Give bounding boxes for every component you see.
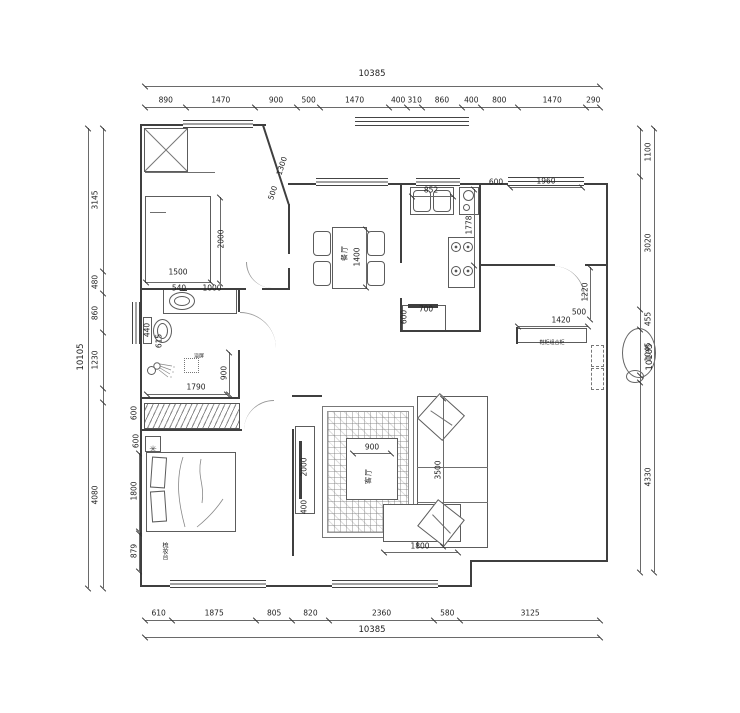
closet-hatch	[144, 403, 240, 429]
dim-label: 580	[440, 609, 454, 617]
wall-segment	[140, 288, 246, 290]
dimension-chain-line	[103, 128, 104, 588]
dim-label: 3020	[644, 233, 652, 252]
dim-label: 1500	[168, 268, 187, 276]
shower-head-icon	[150, 358, 180, 388]
floor-plan: ✳ 鞋柜组合柜	[0, 0, 740, 713]
dim-label: 310	[408, 96, 422, 104]
wall-segment	[140, 124, 142, 587]
dim-label: 600	[489, 178, 503, 186]
dining-table	[332, 227, 367, 289]
entry-door-leaf	[591, 368, 604, 390]
dim-label: 1230	[91, 351, 99, 370]
dimension-chain-line	[145, 86, 600, 87]
sofa-cushion-line	[417, 502, 488, 503]
wall-segment	[262, 288, 290, 290]
dim-label: 1100	[644, 143, 652, 162]
bed-pillow	[150, 491, 167, 523]
window	[332, 580, 438, 588]
dining-chair	[367, 261, 385, 286]
dim-label: 1000	[202, 284, 221, 292]
dim-label: 890	[159, 96, 173, 104]
dim-label: 400	[391, 96, 405, 104]
shoe-cabinet: 鞋柜组合柜	[517, 328, 587, 343]
dim-label: 805	[267, 609, 281, 617]
dim-label: 1470	[345, 96, 364, 104]
dim-label: 1960	[536, 177, 555, 185]
dim-label: 852	[424, 186, 438, 194]
shower-drain-grid	[184, 358, 199, 373]
dim-label: 500	[572, 308, 586, 316]
dim-label: 700	[419, 305, 433, 313]
window	[170, 580, 266, 588]
dim-label: 1800	[410, 542, 429, 550]
dim-label: 1420	[551, 316, 570, 324]
pillow-fold-line	[432, 514, 451, 533]
dim-label: 1300	[275, 156, 288, 176]
window	[316, 178, 388, 186]
dimension-line	[366, 229, 367, 287]
dim-label: 860	[91, 305, 99, 319]
dim-label: 400	[464, 96, 478, 104]
wall-segment	[238, 288, 240, 312]
dim-label: 440	[143, 323, 151, 337]
water-heater-dial	[463, 190, 474, 201]
door-arc-bedroom3	[244, 400, 274, 430]
dimension-chain-line	[145, 620, 600, 621]
stove-burner	[451, 266, 461, 276]
dim-label: 1875	[205, 609, 224, 617]
shoe-cabinet-note: 鞋柜组合柜	[539, 340, 564, 346]
dim-label: 2360	[372, 609, 391, 617]
dimension-line	[147, 394, 227, 395]
dim-label: 540	[172, 284, 186, 292]
dimension-line	[510, 187, 582, 188]
dim-label: 3125	[521, 609, 540, 617]
room-label-dining: 餐厅	[342, 245, 349, 261]
dimension-line	[590, 267, 591, 319]
planter-box: ✳	[145, 436, 161, 452]
window	[183, 120, 253, 128]
dim-label: 3145	[91, 190, 99, 209]
dim-label: 4080	[91, 486, 99, 505]
dim-total-top: 10385	[358, 70, 385, 79]
stove-burner	[463, 266, 473, 276]
dim-label: 480	[91, 275, 99, 289]
wardrobe-box	[144, 128, 188, 172]
wall-segment	[479, 264, 555, 266]
label-dresser: 梳妆台	[161, 542, 167, 560]
dim-label: 1470	[211, 96, 230, 104]
wall-segment	[470, 560, 608, 562]
dim-label: 2000	[217, 229, 225, 248]
dim-label: 500	[267, 185, 279, 201]
dimension-chain-line	[88, 128, 89, 588]
wall-segment	[400, 183, 402, 263]
dining-chair	[313, 231, 331, 256]
dimension-line	[474, 189, 475, 265]
dimension-line	[518, 326, 588, 327]
stove-burner	[451, 242, 461, 252]
wardrobe-x-icon	[145, 129, 187, 171]
dim-label: 600	[130, 406, 138, 420]
dim-label: 290	[586, 96, 600, 104]
wall-segment	[288, 204, 290, 254]
dim-label: 615	[155, 334, 163, 348]
dim-label: 600	[400, 310, 408, 324]
vanity-basin-inner	[174, 296, 190, 306]
dimension-line	[353, 453, 391, 454]
entry-door-leaf	[591, 345, 604, 367]
dim-label: 3500	[434, 460, 442, 479]
wall-segment	[292, 429, 294, 556]
dimension-chain-line	[654, 128, 655, 572]
door-arc-bedroom1	[246, 262, 272, 288]
dim-label: 860	[435, 96, 449, 104]
stove-burner	[463, 242, 473, 252]
dim-label: 1400	[353, 247, 361, 266]
dim-label: 610	[151, 609, 165, 617]
dimension-line	[139, 533, 140, 571]
dim-label: 600	[132, 434, 140, 448]
wall-segment	[606, 183, 608, 562]
dim-label: 879	[130, 544, 138, 558]
dim-label: 900	[269, 96, 283, 104]
dimension-line	[443, 398, 444, 546]
dining-chair	[367, 231, 385, 256]
dim-label: 400	[300, 500, 308, 514]
dim-label: 455	[644, 312, 652, 326]
label-shower-screen: 浴屏	[194, 355, 204, 360]
window	[355, 117, 469, 126]
room-label-living: 客厅	[366, 468, 373, 484]
window	[416, 178, 460, 186]
wall-segment	[140, 397, 240, 399]
dim-label: 1045	[644, 342, 652, 361]
dim-label: 1220	[581, 282, 589, 301]
bed-top-pillow-line	[150, 212, 166, 213]
wall-segment	[292, 395, 322, 397]
dim-total-bottom: 10385	[358, 626, 385, 635]
dim-label: 800	[492, 96, 506, 104]
sofa-cushion-line	[417, 467, 488, 468]
water-heater-dial-small	[463, 204, 470, 211]
dining-chair	[313, 261, 331, 286]
wall-segment	[140, 429, 242, 431]
closet-front-line	[145, 172, 215, 173]
dim-label: 1800	[130, 481, 138, 500]
pillow-fold-line	[430, 410, 452, 425]
wall-segment	[479, 183, 481, 332]
wall-segment	[516, 327, 518, 344]
dim-label: 1778	[465, 215, 473, 234]
dim-total-left: 10105	[77, 343, 86, 370]
wall-segment	[400, 330, 481, 332]
wall-segment	[288, 268, 290, 290]
dimension-line	[229, 352, 230, 394]
dim-label: 500	[301, 96, 315, 104]
door-arc-bathroom	[240, 312, 276, 348]
dimension-chain-line	[640, 128, 641, 572]
dim-label: 820	[303, 609, 317, 617]
dimension-line	[412, 196, 453, 197]
dimension-line	[139, 453, 140, 531]
dimension-line	[384, 552, 458, 553]
bed-pillow	[150, 457, 167, 489]
dim-label: 2000	[300, 457, 308, 476]
wall-segment	[470, 560, 472, 587]
dimension-chain-line	[145, 107, 600, 108]
dim-label: 900	[365, 443, 379, 451]
dim-label: 900	[220, 366, 228, 380]
wall-segment	[238, 350, 240, 399]
dim-label: 1470	[543, 96, 562, 104]
window	[132, 302, 140, 344]
dimension-chain-line	[145, 637, 600, 638]
dim-label: 1790	[186, 383, 205, 391]
dim-label: 4330	[644, 467, 652, 486]
